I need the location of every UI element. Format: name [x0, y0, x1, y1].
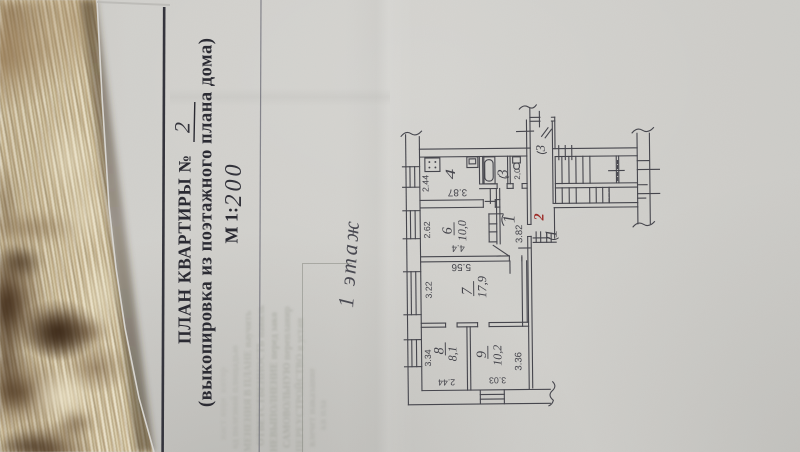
svg-text:6: 6: [441, 227, 456, 234]
svg-text:4: 4: [442, 169, 458, 180]
svg-text:200: 200: [221, 162, 247, 207]
svg-text:3.34: 3.34: [423, 349, 433, 366]
svg-text:2.62: 2.62: [422, 221, 432, 238]
svg-text:10,0: 10,0: [455, 220, 469, 241]
svg-text:2.44: 2.44: [421, 175, 431, 192]
svg-text:НЕВЫПОЛНЕНИЕ перед зако: НЕВЫПОЛНЕНИЕ перед зако: [269, 312, 280, 452]
svg-text:наст ящи котор: наст ящи котор: [218, 366, 229, 440]
svg-text:4.4: 4.4: [451, 242, 464, 253]
svg-text:3.87: 3.87: [447, 186, 467, 197]
svg-text:3.03: 3.03: [489, 375, 506, 385]
svg-text:М 1:: М 1:: [222, 207, 242, 243]
svg-text:влечет наказание: влечет наказание: [307, 368, 318, 447]
svg-text:3.36: 3.36: [513, 352, 524, 371]
svg-text:ПЕРЕУСТРОЙСТВО и устан: ПЕРЕУСТРОЙСТВО и устан: [294, 318, 306, 452]
svg-text:3: 3: [495, 169, 511, 178]
svg-text:2: 2: [170, 122, 195, 133]
svg-text:2,0: 2,0: [513, 168, 522, 180]
svg-text:(выкопировка из поэтажного пла: (выкопировка из поэтажного плана дома): [197, 38, 217, 407]
svg-text:5.56: 5.56: [451, 261, 471, 272]
svg-text:ПЛАН КВАРТИРЫ №: ПЛАН КВАРТИРЫ №: [175, 154, 195, 344]
svg-text:8,1: 8,1: [445, 346, 459, 361]
svg-text:1: 1: [542, 229, 561, 238]
svg-text:кв пла: кв пла: [318, 400, 329, 430]
svg-text:2: 2: [532, 213, 547, 221]
svg-text:17,9: 17,9: [475, 275, 489, 298]
svg-text:ОТВЕТСТВЕННОСТЬ павиль: ОТВЕТСТВЕННОСТЬ павиль: [256, 304, 267, 446]
svg-text:од полезной площадью: од полезной площадью: [230, 345, 241, 449]
svg-text:МЕНЕНИЯ В ПЛАНЕ научить: МЕНЕНИЯ В ПЛАНЕ научить: [243, 310, 254, 452]
svg-text:3.22: 3.22: [424, 281, 434, 298]
svg-text:САМОВОЛЬНУЮ перепланир: САМОВОЛЬНУЮ перепланир: [282, 306, 293, 448]
svg-text:3.82: 3.82: [514, 225, 525, 244]
svg-text:2.44: 2.44: [438, 377, 455, 387]
svg-text:10,2: 10,2: [490, 345, 504, 366]
svg-text:3: 3: [533, 144, 548, 152]
